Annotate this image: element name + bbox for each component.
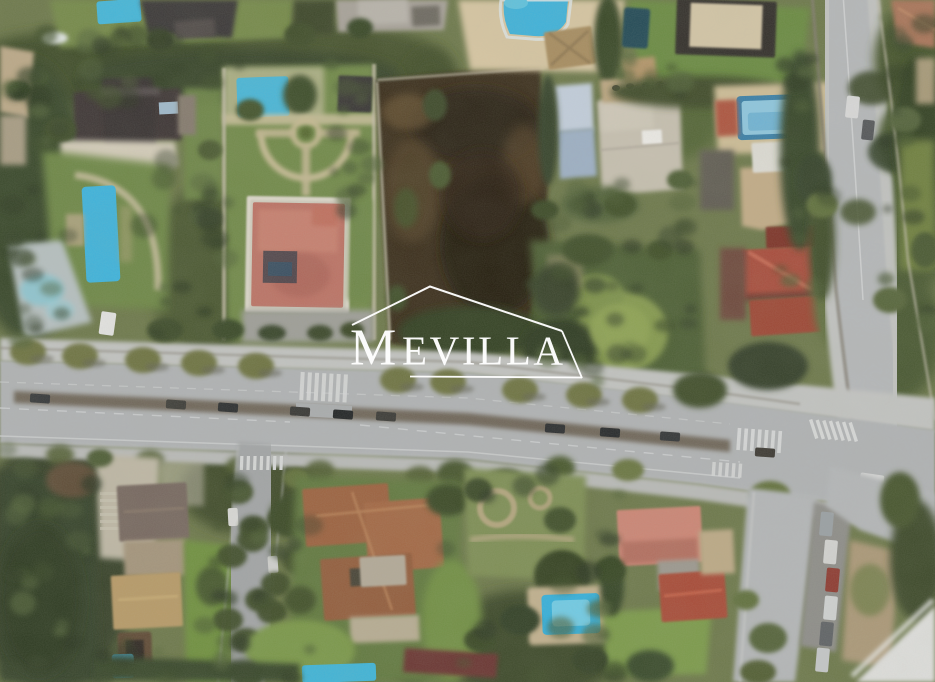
svg-text:M: M bbox=[350, 320, 396, 377]
svg-text:EVILLA: EVILLA bbox=[402, 328, 565, 374]
